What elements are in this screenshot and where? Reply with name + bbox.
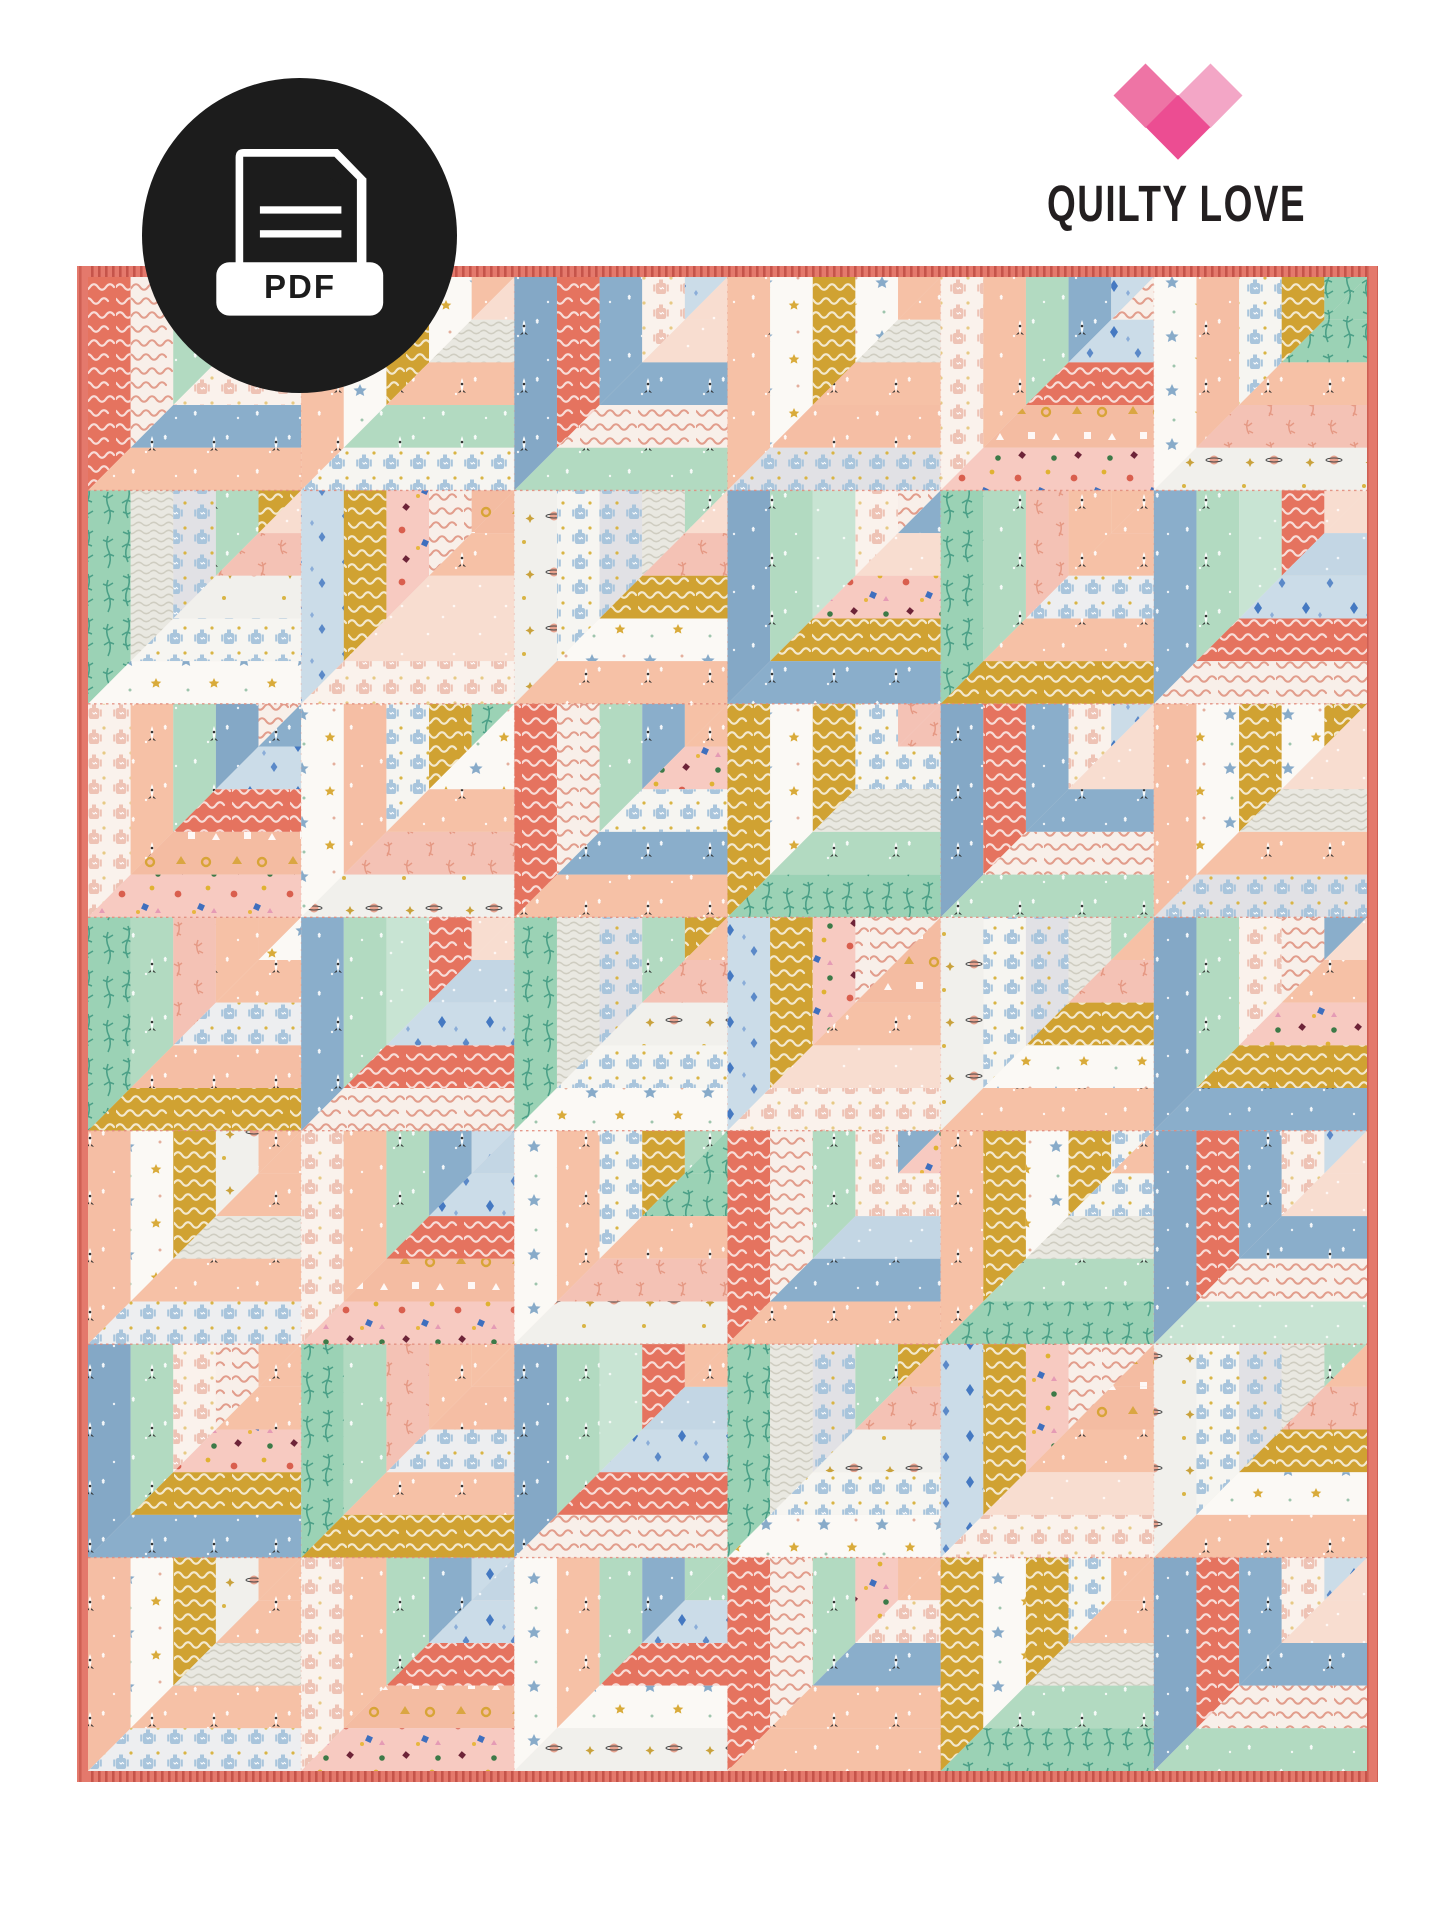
svg-text:PDF: PDF bbox=[264, 268, 336, 305]
svg-text:QUILTY LOVE: QUILTY LOVE bbox=[1047, 175, 1306, 232]
